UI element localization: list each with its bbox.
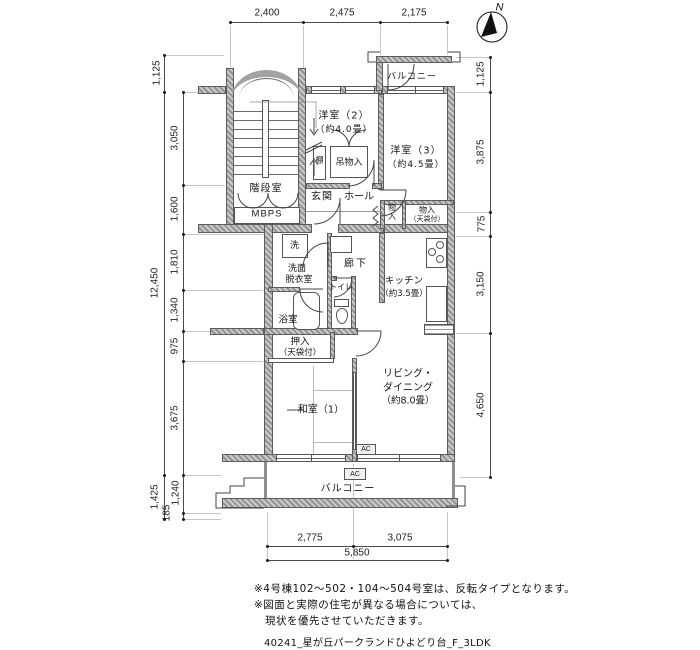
tick-dot [446,545,449,548]
dim-label: 3,150 [476,271,487,296]
dim-label: 2,475 [329,8,354,19]
label-hall: ホール [344,191,374,203]
tick-dot [489,56,492,59]
note-line: ※図面と実際の住宅が異なる場合については、 [254,597,483,612]
mbps-door-arcs [238,193,298,208]
dim-label: 3,875 [476,139,487,164]
label-kitchen-size: （約3.5畳） [380,290,428,300]
ac-unit-indoor: AC [356,444,376,455]
dim-label: 2,775 [297,533,322,544]
tick-dot [182,233,185,236]
dim-label: 1,600 [170,196,181,221]
tick-dot [379,21,382,24]
dim-label: 1,425 [150,484,161,509]
dim-line-top [230,22,448,23]
label-bath: 浴室 [278,316,297,327]
label-west3: 洋室（3） [390,145,441,157]
tick-dot [489,235,492,238]
tick-dot [182,512,185,515]
tick-dot [302,21,305,24]
label-living-size: （約8.0畳） [381,397,434,408]
label-balcony-top: バルコニー [387,72,437,82]
tick-dot [489,91,492,94]
tick-dot [266,559,269,562]
dim-label: 1,240 [171,480,182,505]
tick-dot [163,474,166,477]
label-kitchen: キッチン [385,277,423,288]
dim-label: 4,650 [476,392,487,417]
tick-dot [489,332,492,335]
label-shelf: 棚 [316,155,325,164]
tick-dot [182,184,185,187]
plan-footer-id: 40241_星が丘パークランドひよどり台_F_3LDK [264,634,491,649]
dim-label: 2,400 [254,8,279,19]
label-entrance: 玄関 [311,191,333,203]
label-japanese1: 和室（1） [298,404,344,416]
tick-dot [446,21,449,24]
label-oshiire: 押入 [290,338,309,349]
label-washer: 洗 [290,241,300,251]
tick-dot [163,54,166,57]
dim-label: 12,450 [150,268,161,299]
dim-label: 3,050 [170,125,181,150]
label-living-2: ダイニング [383,382,433,394]
stair-break-mark [306,142,322,153]
dim-label: 3,675 [170,405,181,430]
tick-dot [489,211,492,214]
top-balcony-step-right [448,52,460,62]
tick-dot [182,360,185,363]
dim-label: 3,075 [387,533,412,544]
tick-dot [182,474,185,477]
washroom-door-arc [303,243,328,268]
dim-label: 1,125 [152,60,163,85]
dim-line-left-outer [164,55,165,519]
living-door-arc [356,331,381,356]
ac-unit-balcony: AC [344,468,366,480]
floor-plan: AC AC N バルコニー 洋室（2） （約4.0畳） 洋室（3） （約4.5畳… [0,0,700,650]
label-west3-size: （約4.5畳） [387,160,444,170]
tick-dot [446,559,449,562]
note-line: 現状を優先させていただきます。 [254,613,429,628]
note-line: ※4号棟102～502・104～504号室は、反転タイプとなります。 [254,581,575,596]
tick-dot [163,91,166,94]
north-compass [477,12,507,42]
tick-dot [182,518,185,521]
label-west2-size: （約4.0畳） [315,125,372,135]
label-washroom-2: 脱衣室 [285,275,312,285]
label-stairwell: 階段室 [250,183,283,195]
dim-label: 1,125 [476,61,487,86]
balcony-step-right [446,486,465,506]
dim-label: 975 [170,338,181,355]
label-corridor: 廊下 [344,258,368,270]
label-living-1: リビング・ [383,368,433,380]
dim-label: 1,810 [170,249,181,274]
label-mbps: MBPS [252,210,283,221]
tick-dot [489,476,492,479]
bath-door-arc [300,289,323,312]
dim-label: 775 [477,216,488,233]
label-closet-note: （天袋付） [410,215,445,223]
label-washroom-1: 洗面 [288,264,306,274]
tick-dot [182,91,185,94]
balcony-step-left [216,478,264,508]
dim-label: 2,175 [401,8,426,19]
dim-label: 1,340 [170,297,181,322]
top-balcony-step-left [368,52,380,62]
stair-landing-line [250,102,316,128]
dim-line-left-inner [183,92,184,519]
label-balcony-bottom: バルコニー [321,483,376,495]
dim-label: 5,850 [344,548,369,559]
tick-dot [182,289,185,292]
dim-label: 185 [162,505,173,522]
label-closet: 物入 [419,205,435,214]
tick-dot [229,21,232,24]
label-west2: 洋室（2） [318,110,369,122]
dim-line-right [490,57,491,477]
label-hanging-closet: 吊物入 [335,158,362,168]
tick-dot [182,330,185,333]
label-toilet: トイレ [329,282,353,291]
label-north: N [496,2,505,15]
accordion-door [373,206,378,226]
label-oshiire-note: （天袋付） [279,349,322,359]
label-closet-stack: 物 入 [388,204,396,222]
tick-dot [266,545,269,548]
dim-line-bottom-outer [267,560,448,561]
